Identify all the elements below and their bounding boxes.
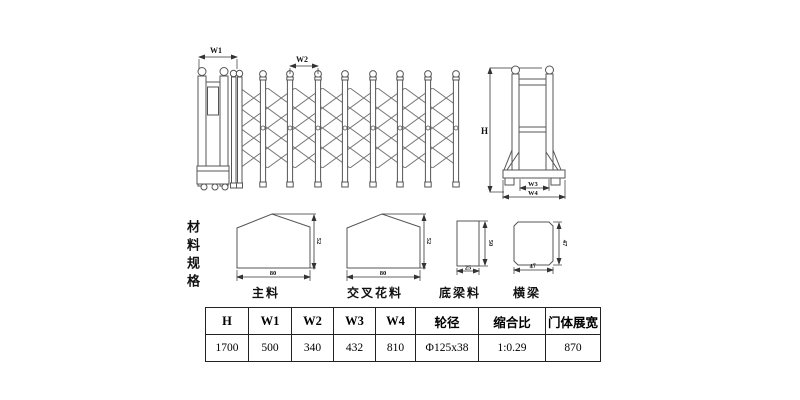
spec-header-w1: W1 — [249, 308, 292, 335]
spec-header-w4: W4 — [376, 308, 416, 335]
spec-header-w3: W3 — [334, 308, 376, 335]
spec-value-w1: 500 — [249, 335, 292, 362]
materials-section-label: 材料规格 — [183, 220, 202, 292]
spec-header-extended-width: 门体展宽 — [546, 308, 601, 335]
profile-beam-height: 47 — [561, 240, 568, 247]
spec-value-w3: 432 — [334, 335, 376, 362]
profile-main-width: 80 — [270, 270, 277, 277]
profile-cross-name: 交叉花料 — [347, 285, 403, 300]
profile-bottom-width: 25 — [465, 265, 472, 272]
profile-bottom-name: 底梁料 — [439, 285, 481, 300]
profile-bottom-height: 50 — [487, 240, 494, 247]
dim-w4-label: W4 — [528, 190, 539, 197]
profile-beam-width: 47 — [529, 262, 537, 270]
spec-header-row: H W1 W2 W3 W4 轮径 缩合比 门体展宽 — [206, 308, 601, 335]
gate-elevation: W1 W2 — [197, 46, 459, 190]
dim-h-label: H — [481, 126, 488, 136]
spec-value-extended-width: 870 — [546, 335, 601, 362]
profile-cross-height: 52 — [425, 238, 432, 245]
profile-cross-width: 80 — [380, 270, 387, 277]
spec-value-wheel-diameter: Φ125x38 — [416, 335, 479, 362]
spec-table: H W1 W2 W3 W4 轮径 缩合比 门体展宽 1700 500 340 4… — [205, 307, 601, 362]
retractable-gate-spec-sheet: W1 W2 H — [0, 0, 800, 400]
gate-drive-unit — [197, 68, 229, 191]
dim-w3-label: W3 — [528, 181, 539, 188]
spec-value-w4: 810 — [376, 335, 416, 362]
profile-main-name: 主料 — [252, 285, 280, 300]
spec-value-row: 1700 500 340 432 810 Φ125x38 1:0.29 870 — [206, 335, 601, 362]
dim-w2-label: W2 — [296, 55, 308, 64]
profile-cross-beam: 47 47 横梁 — [513, 222, 568, 300]
profile-bottom-beam: 25 50 底梁料 — [439, 221, 494, 300]
dim-w2: W2 — [290, 55, 318, 74]
side-frame — [503, 66, 565, 185]
technical-drawing-canvas: W1 W2 H — [0, 0, 800, 307]
profile-cross-lattice-rail: 80 52 交叉花料 — [347, 214, 432, 300]
spec-header-wheel-diameter: 轮径 — [416, 308, 479, 335]
spec-header-retraction-ratio: 缩合比 — [479, 308, 546, 335]
profile-main-height: 52 — [315, 238, 322, 245]
spec-header-h: H — [206, 308, 249, 335]
spec-header-w2: W2 — [292, 308, 334, 335]
side-view: H W3 — [481, 66, 565, 199]
spec-value-retraction-ratio: 1:0.29 — [479, 335, 546, 362]
profile-beam-name: 横梁 — [513, 285, 541, 300]
dim-w1: W1 — [199, 46, 237, 69]
spec-value-w2: 340 — [292, 335, 334, 362]
spec-value-h: 1700 — [206, 335, 249, 362]
profile-main-rail: 80 52 主料 — [237, 214, 322, 300]
dim-w1-label: W1 — [210, 46, 222, 55]
